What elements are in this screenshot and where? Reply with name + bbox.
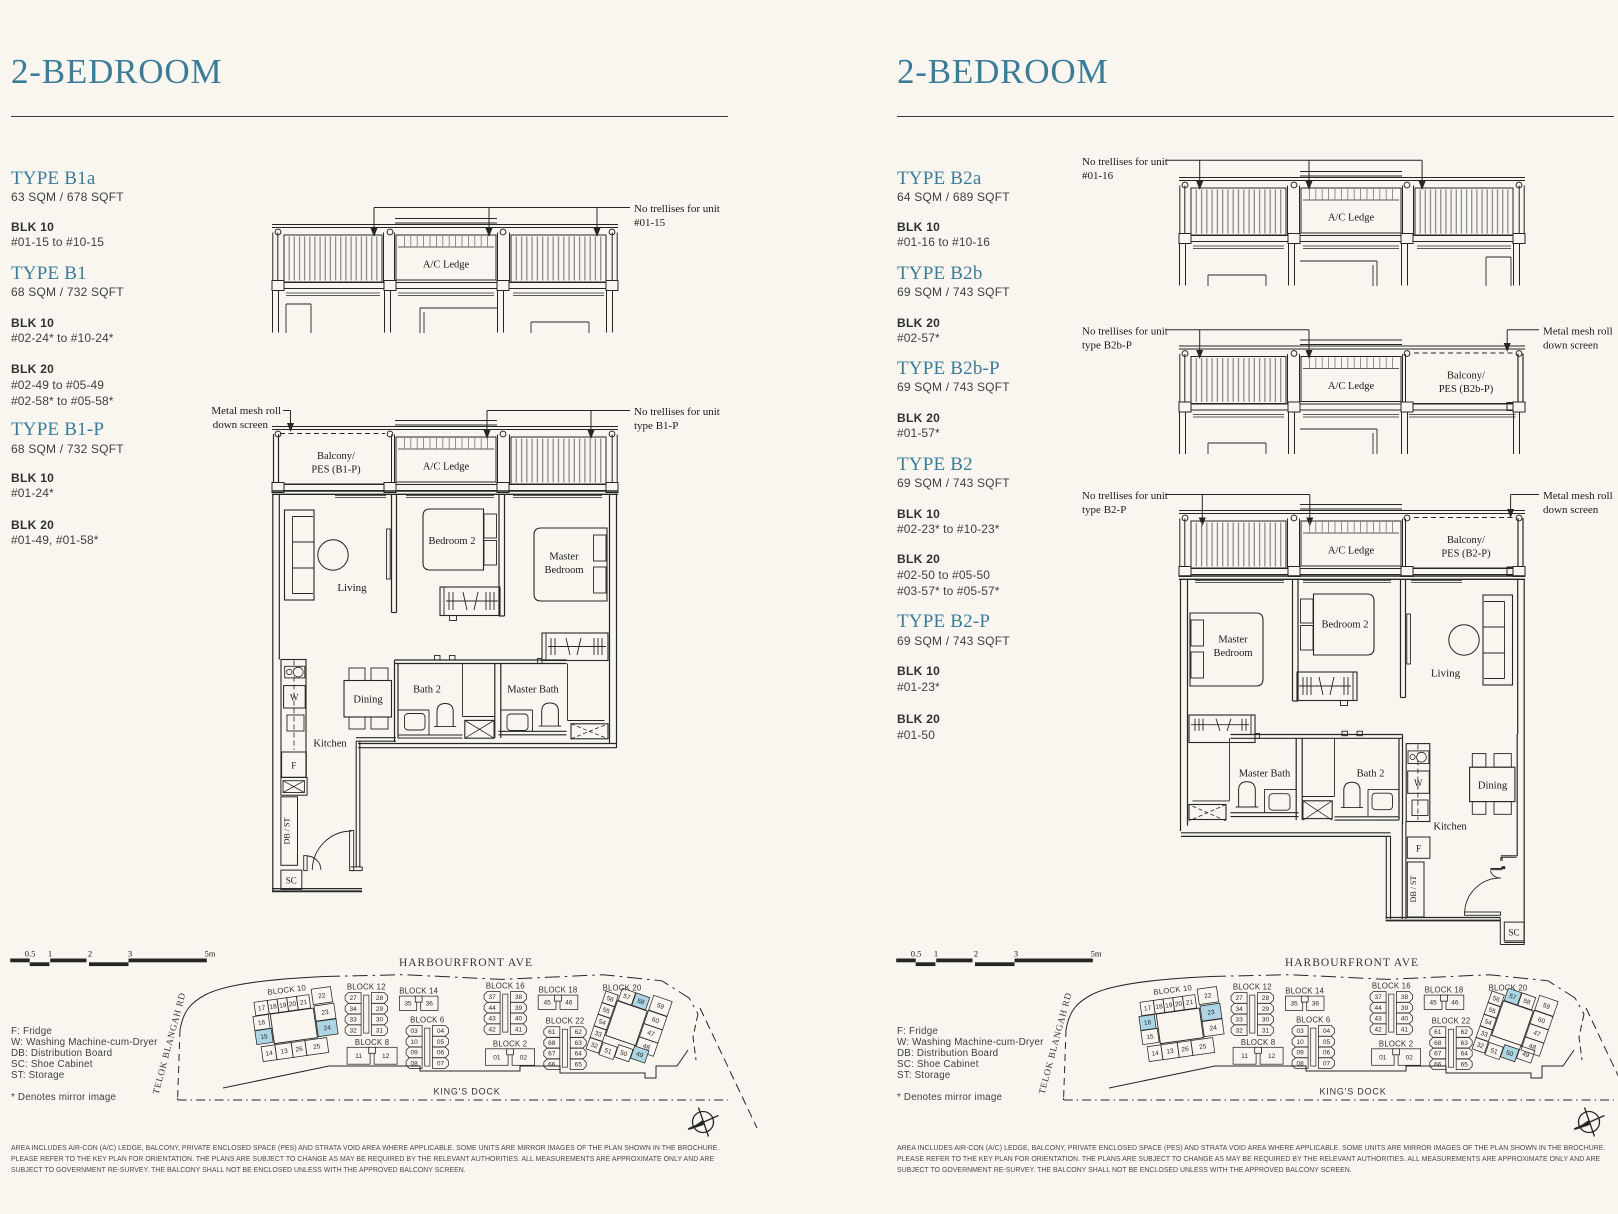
svg-text:56: 56: [1491, 995, 1500, 1004]
svg-text:A/C Ledge: A/C Ledge: [1328, 546, 1375, 557]
svg-text:16: 16: [258, 1019, 267, 1027]
svg-text:Bedroom 2: Bedroom 2: [429, 536, 476, 547]
svg-text:Dining: Dining: [353, 695, 383, 706]
svg-text:A/C Ledge: A/C Ledge: [1328, 213, 1375, 224]
svg-text:type B1-P: type B1-P: [634, 420, 678, 432]
svg-text:28: 28: [376, 995, 384, 1002]
svg-text:18: 18: [269, 1003, 278, 1011]
svg-text:60: 60: [1537, 1016, 1546, 1025]
svg-text:30: 30: [1262, 1017, 1270, 1024]
svg-text:67: 67: [1434, 1051, 1442, 1058]
svg-text:51: 51: [1489, 1047, 1498, 1056]
svg-text:45: 45: [543, 1000, 551, 1007]
svg-text:DB / ST: DB / ST: [1409, 876, 1418, 903]
svg-text:BLOCK 2: BLOCK 2: [493, 1039, 527, 1048]
svg-text:BLOCK 8: BLOCK 8: [1241, 1038, 1275, 1047]
svg-text:24: 24: [323, 1024, 332, 1032]
svg-text:57: 57: [622, 993, 631, 1002]
svg-text:66: 66: [548, 1062, 556, 1069]
svg-text:Dining: Dining: [1478, 781, 1508, 792]
svg-text:65: 65: [575, 1062, 583, 1069]
svg-text:17: 17: [258, 1005, 267, 1013]
svg-text:66: 66: [1434, 1062, 1442, 1069]
svg-text:SC: SC: [1508, 928, 1519, 938]
svg-text:13: 13: [1166, 1048, 1175, 1056]
svg-text:40: 40: [1401, 1016, 1409, 1023]
svg-text:02: 02: [520, 1054, 528, 1061]
svg-text:14: 14: [265, 1050, 274, 1058]
svg-text:Master Bath: Master Bath: [507, 685, 559, 696]
svg-text:Balcony/: Balcony/: [317, 451, 355, 462]
svg-text:45: 45: [1429, 1000, 1437, 1007]
svg-text:42: 42: [1374, 1026, 1382, 1033]
svg-text:49: 49: [1521, 1051, 1530, 1060]
svg-text:23: 23: [1207, 1009, 1216, 1017]
svg-text:07: 07: [437, 1060, 445, 1067]
svg-text:BLOCK 8: BLOCK 8: [355, 1038, 389, 1047]
svg-text:27: 27: [1235, 995, 1243, 1002]
svg-text:0.5: 0.5: [25, 949, 36, 959]
svg-text:HARBOURFRONT AVE: HARBOURFRONT AVE: [1285, 957, 1419, 969]
svg-text:38: 38: [515, 994, 523, 1001]
svg-text:Kitchen: Kitchen: [1433, 822, 1467, 833]
svg-text:2: 2: [88, 949, 92, 959]
svg-text:KING'S DOCK: KING'S DOCK: [1319, 1087, 1386, 1097]
svg-text:64: 64: [1461, 1051, 1469, 1058]
svg-text:HARBOURFRONT AVE: HARBOURFRONT AVE: [399, 957, 533, 969]
svg-text:Bath 2: Bath 2: [413, 685, 441, 696]
svg-text:22: 22: [318, 992, 327, 1000]
svg-text:37: 37: [1374, 994, 1382, 1001]
svg-text:down screen: down screen: [1543, 504, 1599, 516]
svg-text:A/C Ledge: A/C Ledge: [423, 260, 470, 271]
svg-text:32: 32: [1475, 1042, 1484, 1051]
svg-text:07: 07: [1323, 1060, 1331, 1067]
svg-text:18: 18: [1155, 1003, 1164, 1011]
svg-text:47: 47: [646, 1030, 655, 1039]
svg-text:03: 03: [1296, 1028, 1304, 1035]
svg-text:29: 29: [1262, 1006, 1270, 1013]
svg-text:BLOCK 18: BLOCK 18: [1425, 986, 1464, 995]
svg-text:05: 05: [1323, 1039, 1331, 1046]
svg-text:BLOCK 16: BLOCK 16: [486, 982, 525, 991]
svg-text:Metal mesh roll: Metal mesh roll: [1543, 490, 1613, 502]
svg-text:11: 11: [1241, 1053, 1248, 1060]
svg-text:08: 08: [1296, 1060, 1304, 1067]
svg-text:06: 06: [437, 1050, 445, 1057]
svg-text:25: 25: [1199, 1043, 1208, 1051]
svg-text:24: 24: [1209, 1024, 1218, 1032]
svg-text:37: 37: [488, 994, 496, 1001]
svg-text:04: 04: [437, 1028, 445, 1035]
svg-text:32: 32: [349, 1027, 357, 1034]
svg-text:30: 30: [376, 1017, 384, 1024]
svg-text:55: 55: [1487, 1007, 1496, 1016]
svg-text:BLOCK 12: BLOCK 12: [347, 983, 386, 992]
svg-text:5m: 5m: [1091, 949, 1102, 959]
svg-text:type B2b-P: type B2b-P: [1082, 340, 1132, 352]
svg-text:0.5: 0.5: [911, 949, 922, 959]
svg-text:02: 02: [1406, 1054, 1414, 1061]
svg-text:01: 01: [1379, 1054, 1387, 1061]
svg-text:55: 55: [601, 1007, 610, 1016]
svg-text:SC: SC: [286, 876, 297, 886]
svg-text:61: 61: [548, 1029, 556, 1036]
svg-text:TELOK BLANGAH RD: TELOK BLANGAH RD: [151, 991, 188, 1095]
svg-text:21: 21: [1186, 999, 1195, 1007]
svg-text:04: 04: [1323, 1028, 1331, 1035]
svg-text:43: 43: [1374, 1016, 1382, 1023]
svg-text:23: 23: [321, 1009, 330, 1017]
svg-text:BLOCK 6: BLOCK 6: [1296, 1016, 1330, 1025]
svg-text:BLOCK 18: BLOCK 18: [539, 986, 578, 995]
svg-text:26: 26: [1181, 1046, 1190, 1054]
svg-text:09: 09: [410, 1050, 418, 1057]
svg-text:15: 15: [260, 1033, 269, 1041]
svg-text:38: 38: [1401, 994, 1409, 1001]
svg-text:Balcony/: Balcony/: [1447, 535, 1485, 546]
svg-text:31: 31: [376, 1027, 384, 1034]
svg-text:KING'S DOCK: KING'S DOCK: [433, 1087, 500, 1097]
svg-text:54: 54: [597, 1018, 606, 1027]
svg-text:03: 03: [410, 1028, 418, 1035]
svg-text:13: 13: [280, 1048, 289, 1056]
svg-text:54: 54: [1483, 1018, 1492, 1027]
svg-text:No trellises for unit: No trellises for unit: [634, 203, 720, 215]
svg-text:68: 68: [1434, 1040, 1442, 1047]
svg-text:BLOCK 10: BLOCK 10: [1153, 983, 1193, 997]
svg-text:28: 28: [1262, 995, 1270, 1002]
svg-text:44: 44: [1374, 1005, 1382, 1012]
svg-text:09: 09: [1296, 1050, 1304, 1057]
svg-text:25: 25: [313, 1043, 322, 1051]
svg-text:47: 47: [1532, 1030, 1541, 1039]
svg-text:Balcony/: Balcony/: [1447, 371, 1485, 382]
svg-text:46: 46: [565, 1000, 573, 1007]
svg-text:36: 36: [426, 1001, 434, 1008]
svg-text:type B2-P: type B2-P: [1082, 504, 1126, 516]
svg-text:Bath 2: Bath 2: [1357, 769, 1385, 780]
svg-text:20: 20: [1175, 1000, 1184, 1008]
svg-text:40: 40: [515, 1016, 523, 1023]
svg-text:12: 12: [382, 1053, 390, 1060]
svg-text:44: 44: [488, 1005, 496, 1012]
svg-text:down screen: down screen: [1543, 340, 1599, 352]
svg-text:TELOK BLANGAH RD: TELOK BLANGAH RD: [1037, 991, 1074, 1095]
svg-text:Bedroom: Bedroom: [1213, 648, 1252, 659]
svg-text:BLOCK 22: BLOCK 22: [1432, 1017, 1471, 1026]
svg-text:63: 63: [1461, 1040, 1469, 1047]
svg-text:58: 58: [1522, 998, 1531, 1007]
svg-text:08: 08: [410, 1060, 418, 1067]
svg-text:11: 11: [355, 1053, 362, 1060]
svg-text:DB / ST: DB / ST: [283, 818, 292, 845]
svg-text:35: 35: [404, 1001, 412, 1008]
svg-text:3: 3: [128, 949, 132, 959]
svg-text:26: 26: [295, 1046, 304, 1054]
svg-text:Metal mesh roll: Metal mesh roll: [1543, 326, 1613, 338]
svg-text:10: 10: [1296, 1039, 1304, 1046]
svg-text:Kitchen: Kitchen: [313, 739, 347, 750]
svg-text:down screen: down screen: [213, 419, 269, 431]
svg-text:5m: 5m: [205, 949, 216, 959]
svg-text:59: 59: [1542, 1002, 1551, 1011]
svg-text:61: 61: [1434, 1029, 1442, 1036]
svg-text:3: 3: [1014, 949, 1018, 959]
svg-text:43: 43: [488, 1016, 496, 1023]
svg-text:36: 36: [1312, 1001, 1320, 1008]
svg-text:#01-16: #01-16: [1082, 170, 1114, 182]
svg-text:Metal mesh roll: Metal mesh roll: [211, 405, 281, 417]
svg-text:46: 46: [1451, 1000, 1459, 1007]
svg-text:32: 32: [589, 1042, 598, 1051]
svg-text:F: F: [291, 761, 296, 771]
svg-text:63: 63: [575, 1040, 583, 1047]
svg-text:21: 21: [300, 999, 309, 1007]
svg-text:42: 42: [488, 1026, 496, 1033]
svg-text:16: 16: [1144, 1019, 1153, 1027]
svg-text:Living: Living: [337, 582, 367, 594]
svg-text:62: 62: [575, 1029, 583, 1036]
svg-text:60: 60: [651, 1016, 660, 1025]
svg-text:68: 68: [548, 1040, 556, 1047]
svg-text:Bedroom: Bedroom: [544, 565, 583, 576]
svg-text:10: 10: [410, 1039, 418, 1046]
svg-text:34: 34: [1235, 1006, 1243, 1013]
svg-text:20: 20: [289, 1000, 298, 1008]
svg-text:29: 29: [376, 1006, 384, 1013]
svg-text:39: 39: [1401, 1005, 1409, 1012]
svg-text:F: F: [1416, 844, 1421, 854]
svg-text:56: 56: [605, 995, 614, 1004]
svg-text:33: 33: [349, 1017, 357, 1024]
svg-text:No trellises for unit: No trellises for unit: [634, 406, 720, 418]
svg-text:Living: Living: [1431, 668, 1461, 680]
svg-text:06: 06: [1323, 1050, 1331, 1057]
svg-text:41: 41: [515, 1026, 523, 1033]
svg-text:PES (B1-P): PES (B1-P): [311, 465, 361, 476]
svg-text:A/C Ledge: A/C Ledge: [423, 462, 470, 473]
svg-text:BLOCK 10: BLOCK 10: [267, 983, 307, 997]
svg-text:33: 33: [1479, 1030, 1488, 1039]
svg-text:35: 35: [1290, 1001, 1298, 1008]
svg-text:67: 67: [548, 1051, 556, 1058]
svg-text:No trellises for unit: No trellises for unit: [1082, 326, 1168, 338]
svg-text:64: 64: [575, 1051, 583, 1058]
svg-text:BLOCK 2: BLOCK 2: [1379, 1039, 1413, 1048]
svg-text:31: 31: [1262, 1027, 1270, 1034]
svg-text:59: 59: [656, 1002, 665, 1011]
svg-text:BLOCK 14: BLOCK 14: [399, 987, 438, 996]
svg-text:1: 1: [48, 949, 52, 959]
svg-text:27: 27: [349, 995, 357, 1002]
svg-text:A/C Ledge: A/C Ledge: [1328, 381, 1375, 392]
svg-text:48: 48: [1528, 1043, 1537, 1052]
svg-text:PES (B2b-P): PES (B2b-P): [1439, 384, 1494, 395]
svg-text:Master: Master: [549, 552, 579, 563]
svg-text:50: 50: [619, 1049, 628, 1058]
svg-text:No trellises for unit: No trellises for unit: [1082, 490, 1168, 502]
svg-text:Master: Master: [1218, 635, 1248, 646]
svg-text:19: 19: [279, 1002, 288, 1010]
svg-text:51: 51: [603, 1047, 612, 1056]
svg-text:2: 2: [974, 949, 978, 959]
svg-text:BLOCK 6: BLOCK 6: [410, 1016, 444, 1025]
svg-text:14: 14: [1151, 1050, 1160, 1058]
svg-text:39: 39: [515, 1005, 523, 1012]
svg-text:BLOCK 14: BLOCK 14: [1285, 987, 1324, 996]
svg-text:W: W: [1414, 778, 1423, 788]
svg-text:15: 15: [1146, 1033, 1155, 1041]
svg-text:05: 05: [437, 1039, 445, 1046]
svg-text:33: 33: [1235, 1017, 1243, 1024]
svg-text:No trellises for unit: No trellises for unit: [1082, 156, 1168, 168]
svg-text:41: 41: [1401, 1026, 1409, 1033]
svg-text:32: 32: [1235, 1027, 1243, 1034]
svg-text:BLOCK 16: BLOCK 16: [1372, 982, 1411, 991]
svg-text:W: W: [290, 693, 299, 703]
svg-text:34: 34: [349, 1006, 357, 1013]
svg-text:#01-15: #01-15: [634, 217, 666, 229]
svg-text:BLOCK 12: BLOCK 12: [1233, 983, 1272, 992]
svg-text:BLOCK 22: BLOCK 22: [546, 1017, 585, 1026]
svg-text:1: 1: [934, 949, 938, 959]
svg-text:17: 17: [1144, 1005, 1153, 1013]
svg-text:62: 62: [1461, 1029, 1469, 1036]
svg-text:19: 19: [1165, 1002, 1174, 1010]
svg-text:12: 12: [1268, 1053, 1276, 1060]
svg-text:PES (B2-P): PES (B2-P): [1441, 549, 1491, 560]
svg-text:Bedroom 2: Bedroom 2: [1322, 620, 1369, 631]
svg-text:22: 22: [1204, 992, 1213, 1000]
svg-text:65: 65: [1461, 1062, 1469, 1069]
svg-text:Master Bath: Master Bath: [1239, 769, 1291, 780]
svg-text:01: 01: [493, 1054, 501, 1061]
svg-text:33: 33: [593, 1030, 602, 1039]
